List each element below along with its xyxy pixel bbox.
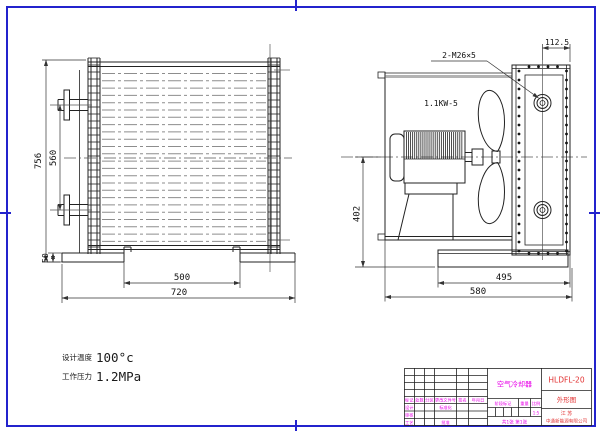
center-lines [64, 44, 292, 272]
working-pressure-label: 工作压力 [62, 371, 96, 382]
role-approve: 批准 [441, 419, 449, 426]
tube-sheet-left [88, 58, 100, 247]
centering-tick-top [295, 0, 297, 11]
label-thread-ports: 2-M26×5 [442, 51, 476, 60]
rev-header-sign: 签名 [458, 397, 466, 404]
design-temp-value: 100°c [96, 350, 134, 365]
dim-overall-height: 756 [34, 153, 44, 169]
rev-header-date: 年月日 [472, 397, 485, 404]
role-design: 设计 [405, 404, 413, 411]
dim-overall-width-side: 580 [470, 287, 486, 297]
dim-port-offset: 112.5 [545, 38, 569, 47]
role-process: 工艺 [405, 420, 413, 425]
rev-header-mark: 标记 [405, 397, 414, 404]
front-view-heat-exchanger: 756 560 50 500 720 [34, 36, 324, 312]
scale-label: 比例 [532, 400, 540, 407]
drawing-sheet: 756 560 50 500 720 [0, 0, 600, 431]
rev-header-docno: 更改文件号 [435, 397, 456, 404]
dim-base-width: 495 [496, 273, 512, 283]
rev-header-count: 处数 [415, 397, 424, 404]
drawing-number: HLDFL-20 [548, 376, 584, 385]
motor-fins [407, 132, 462, 159]
centering-tick-left [0, 212, 11, 214]
pipe-connection-top [50, 90, 92, 120]
company-region: 江 苏 [561, 410, 573, 417]
tube-rows [102, 74, 266, 242]
label-motor-power: 1.1KW-5 [424, 99, 458, 108]
view-title: 外形图 [557, 395, 577, 404]
dim-port-spacing: 560 [49, 150, 59, 166]
weight-label: 重量 [520, 400, 528, 407]
title-block: 标记 处数 分区 更改文件号 签名 年月日 设计 标准化 审核 工艺 批准 空气… [404, 368, 592, 426]
dim-overall-width: 720 [171, 288, 187, 298]
dim-base-height: 50 [41, 253, 50, 263]
stage-mark-label: 阶段标记 [495, 400, 513, 407]
scale-value: 1:5 [533, 411, 540, 416]
side-view-fan-assembly: 2-M26×5 1.1KW-5 112.5 402 495 580 [335, 18, 593, 308]
rev-header-zone: 分区 [425, 397, 433, 404]
company-name: 中通新能源有限公司 [546, 418, 588, 425]
product-name: 空气冷却器 [497, 380, 532, 389]
role-standardization: 标准化 [439, 404, 452, 411]
casing [80, 58, 281, 254]
design-notes: 设计温度 100°c 工作压力 1.2MPa [62, 348, 141, 386]
pipe-connection-bottom [50, 195, 92, 225]
coil-end-panel [512, 60, 570, 260]
centering-tick-bottom [295, 420, 297, 431]
front-view-dimensions: 756 560 50 500 720 [34, 60, 295, 303]
motor-pedestal [398, 194, 453, 240]
motor [390, 131, 483, 240]
dim-foot-spacing: 500 [174, 273, 190, 283]
role-check: 审核 [405, 412, 414, 419]
design-temp-label: 设计温度 [62, 352, 96, 363]
working-pressure-value: 1.2MPa [96, 369, 141, 384]
dim-center-to-base: 402 [353, 206, 363, 222]
sheet-note: 共1张 第1张 [502, 419, 528, 426]
